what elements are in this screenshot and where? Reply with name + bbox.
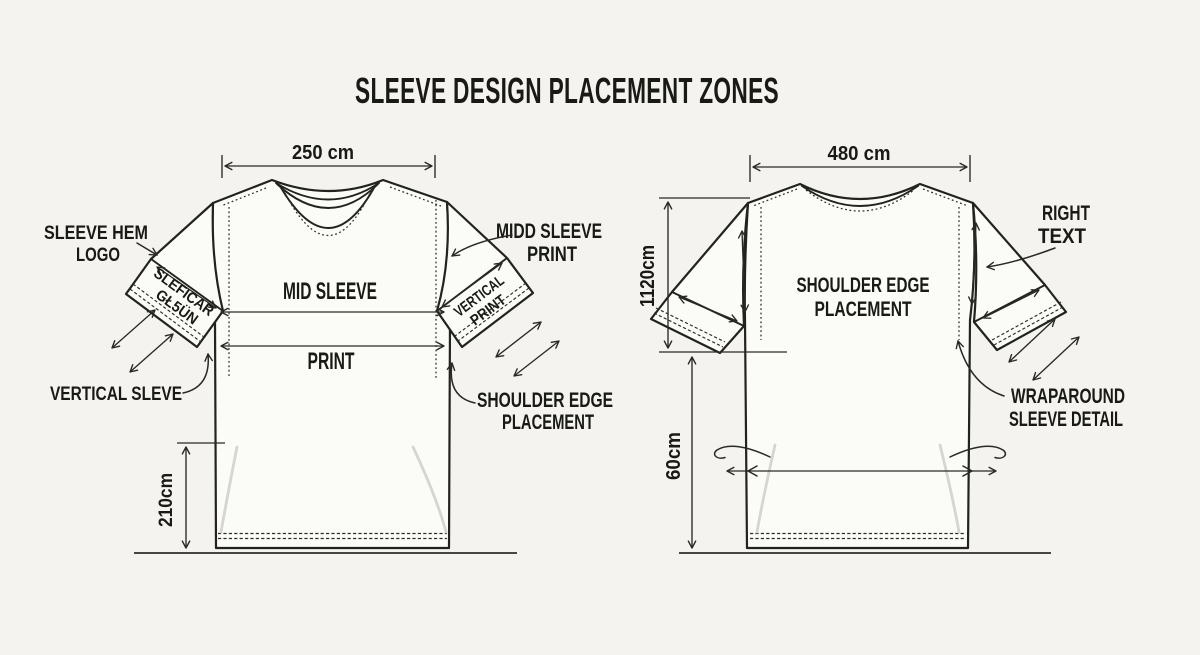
back-body-outline xyxy=(745,184,975,548)
mid-sleeve-zone-label: MID SLEEVE xyxy=(283,278,377,305)
front-height-value: 210cm xyxy=(156,473,177,527)
back-shoulder-edge-line2: PLACEMENT xyxy=(815,298,912,321)
front-shoulder-edge-line1: SHOULDER EDGE xyxy=(477,389,613,412)
midd-sleeve-print-line2: PRINT xyxy=(527,243,577,266)
back-upper-height-value: 1120cm xyxy=(637,245,659,307)
front-shoulder-edge-line2: PLACEMENT xyxy=(502,411,594,434)
wraparound-line2: SLEEVE DETAIL xyxy=(1009,408,1123,431)
back-shoulder-edge-line1: SHOULDER EDGE xyxy=(797,274,930,297)
back-width-value: 480 cm xyxy=(828,143,891,165)
sleeve-hem-logo-line1: SLEEVE HEM xyxy=(44,223,148,244)
page-title: SLEEVE DESIGN PLACEMENT ZONES xyxy=(355,70,779,111)
print-zone-label: PRINT xyxy=(308,348,355,375)
front-width-value: 250 cm xyxy=(292,142,354,164)
sleeve-hem-logo-line2: LOGO xyxy=(76,245,120,266)
midd-sleeve-print-line1: MIDD SLEEVE xyxy=(496,220,602,243)
right-text-line1: RIGHT xyxy=(1042,202,1090,225)
back-shoulder-edge-label: SHOULDER EDGE PLACEMENT xyxy=(797,274,930,321)
diagram-canvas: SLEEVE DESIGN PLACEMENT ZONES MID SLEEVE… xyxy=(0,0,1200,655)
right-text-line2: TEXT xyxy=(1038,225,1086,248)
vertical-sleve-text: VERTICAL SLEVE xyxy=(50,384,182,405)
wraparound-line1: WRAPAROUND xyxy=(1011,385,1125,408)
back-lower-height-value: 60cm xyxy=(663,432,685,480)
sleeve-placement-diagram: SLEEVE DESIGN PLACEMENT ZONES MID SLEEVE… xyxy=(0,0,1200,655)
